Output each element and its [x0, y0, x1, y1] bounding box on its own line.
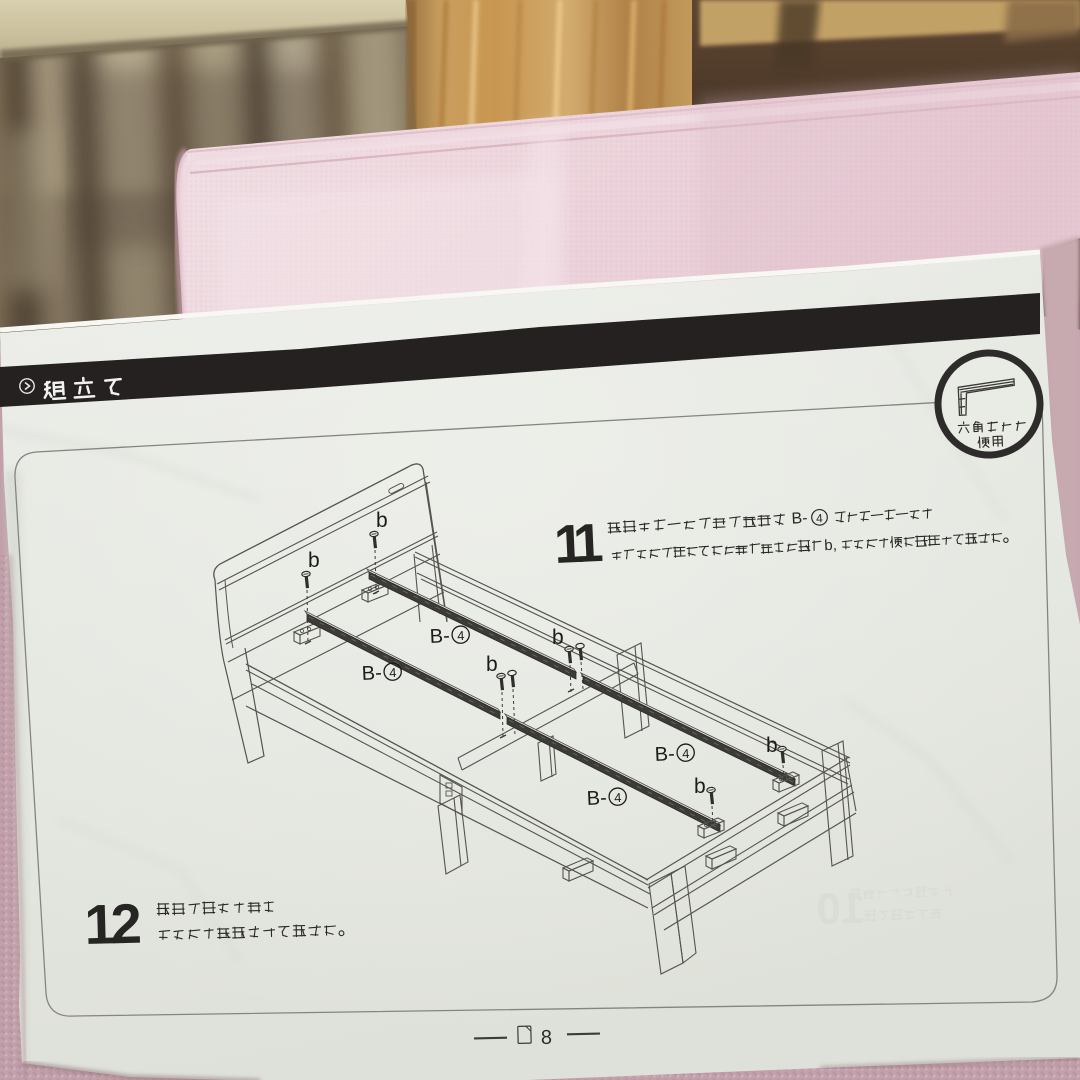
svg-text:B-: B-: [791, 510, 808, 528]
svg-text:B-: B-: [429, 625, 450, 648]
svg-text:4: 4: [816, 511, 824, 525]
svg-text:4: 4: [614, 790, 622, 805]
svg-text:B-: B-: [654, 743, 675, 766]
svg-text:4: 4: [389, 665, 397, 680]
svg-text:10: 10: [815, 884, 866, 935]
svg-text:4: 4: [457, 628, 465, 643]
svg-text:b,: b,: [824, 537, 837, 555]
svg-text:b: b: [486, 653, 498, 676]
svg-text:4: 4: [682, 746, 690, 761]
svg-text:12: 12: [84, 892, 141, 956]
svg-text:8: 8: [541, 1027, 553, 1049]
svg-text:B-: B-: [586, 787, 607, 810]
svg-text:b: b: [694, 775, 706, 798]
svg-text:b: b: [766, 734, 778, 757]
svg-text:b: b: [308, 549, 320, 572]
svg-text:b: b: [376, 509, 388, 532]
svg-text:B-: B-: [361, 662, 382, 685]
svg-text:b: b: [552, 626, 564, 649]
